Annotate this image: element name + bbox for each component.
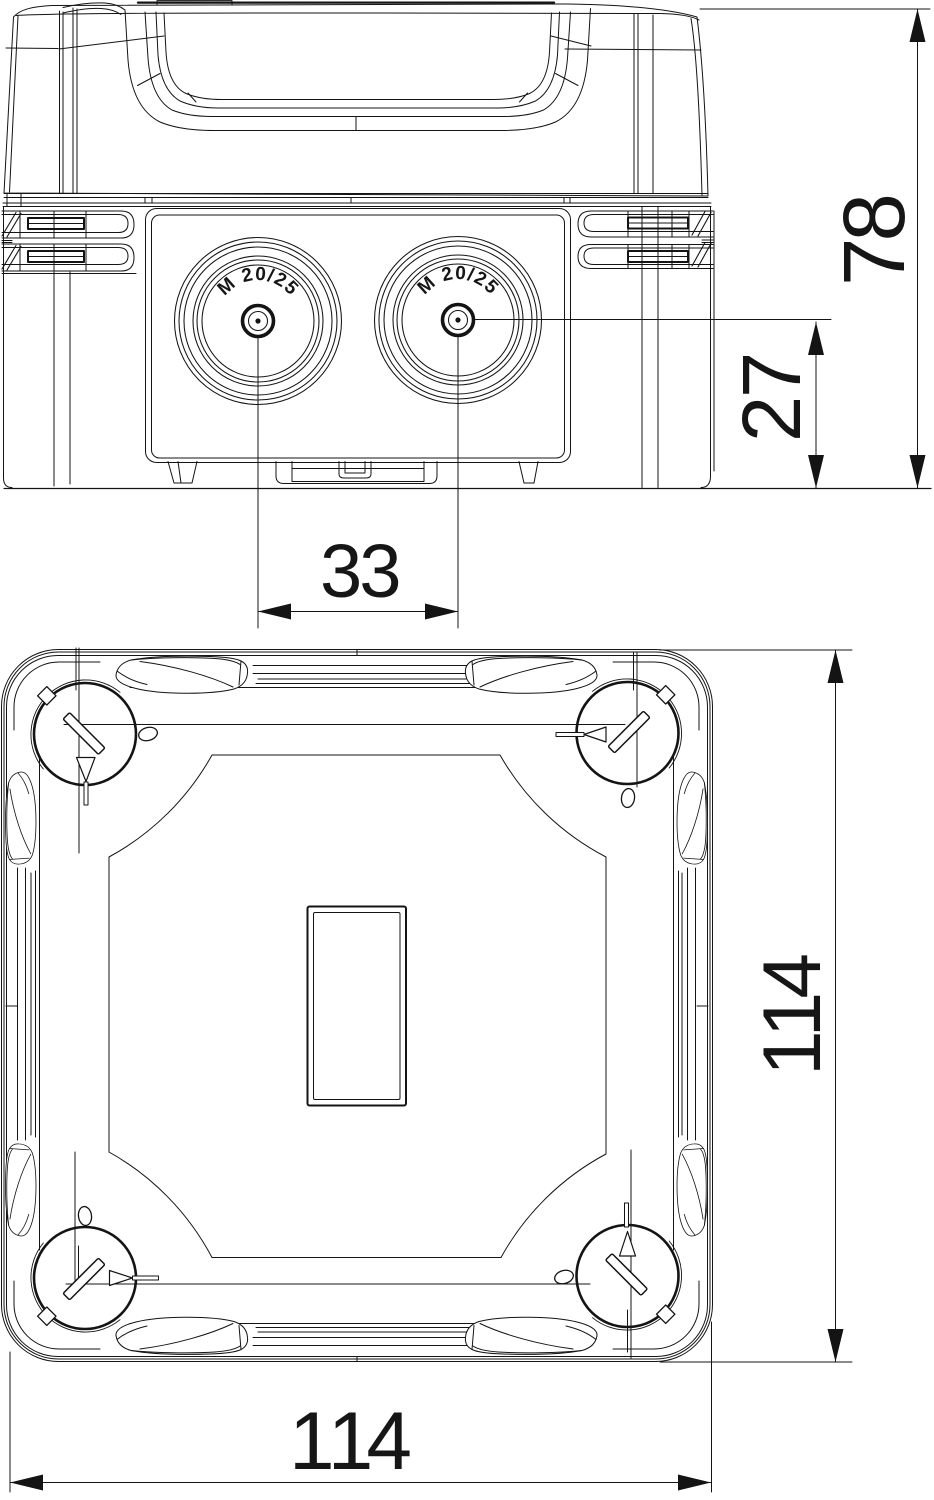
svg-text:27: 27: [725, 352, 818, 442]
svg-text:78: 78: [826, 193, 923, 286]
svg-text:33: 33: [320, 529, 402, 614]
svg-text:114: 114: [289, 1396, 412, 1487]
svg-text:114: 114: [747, 953, 838, 1076]
